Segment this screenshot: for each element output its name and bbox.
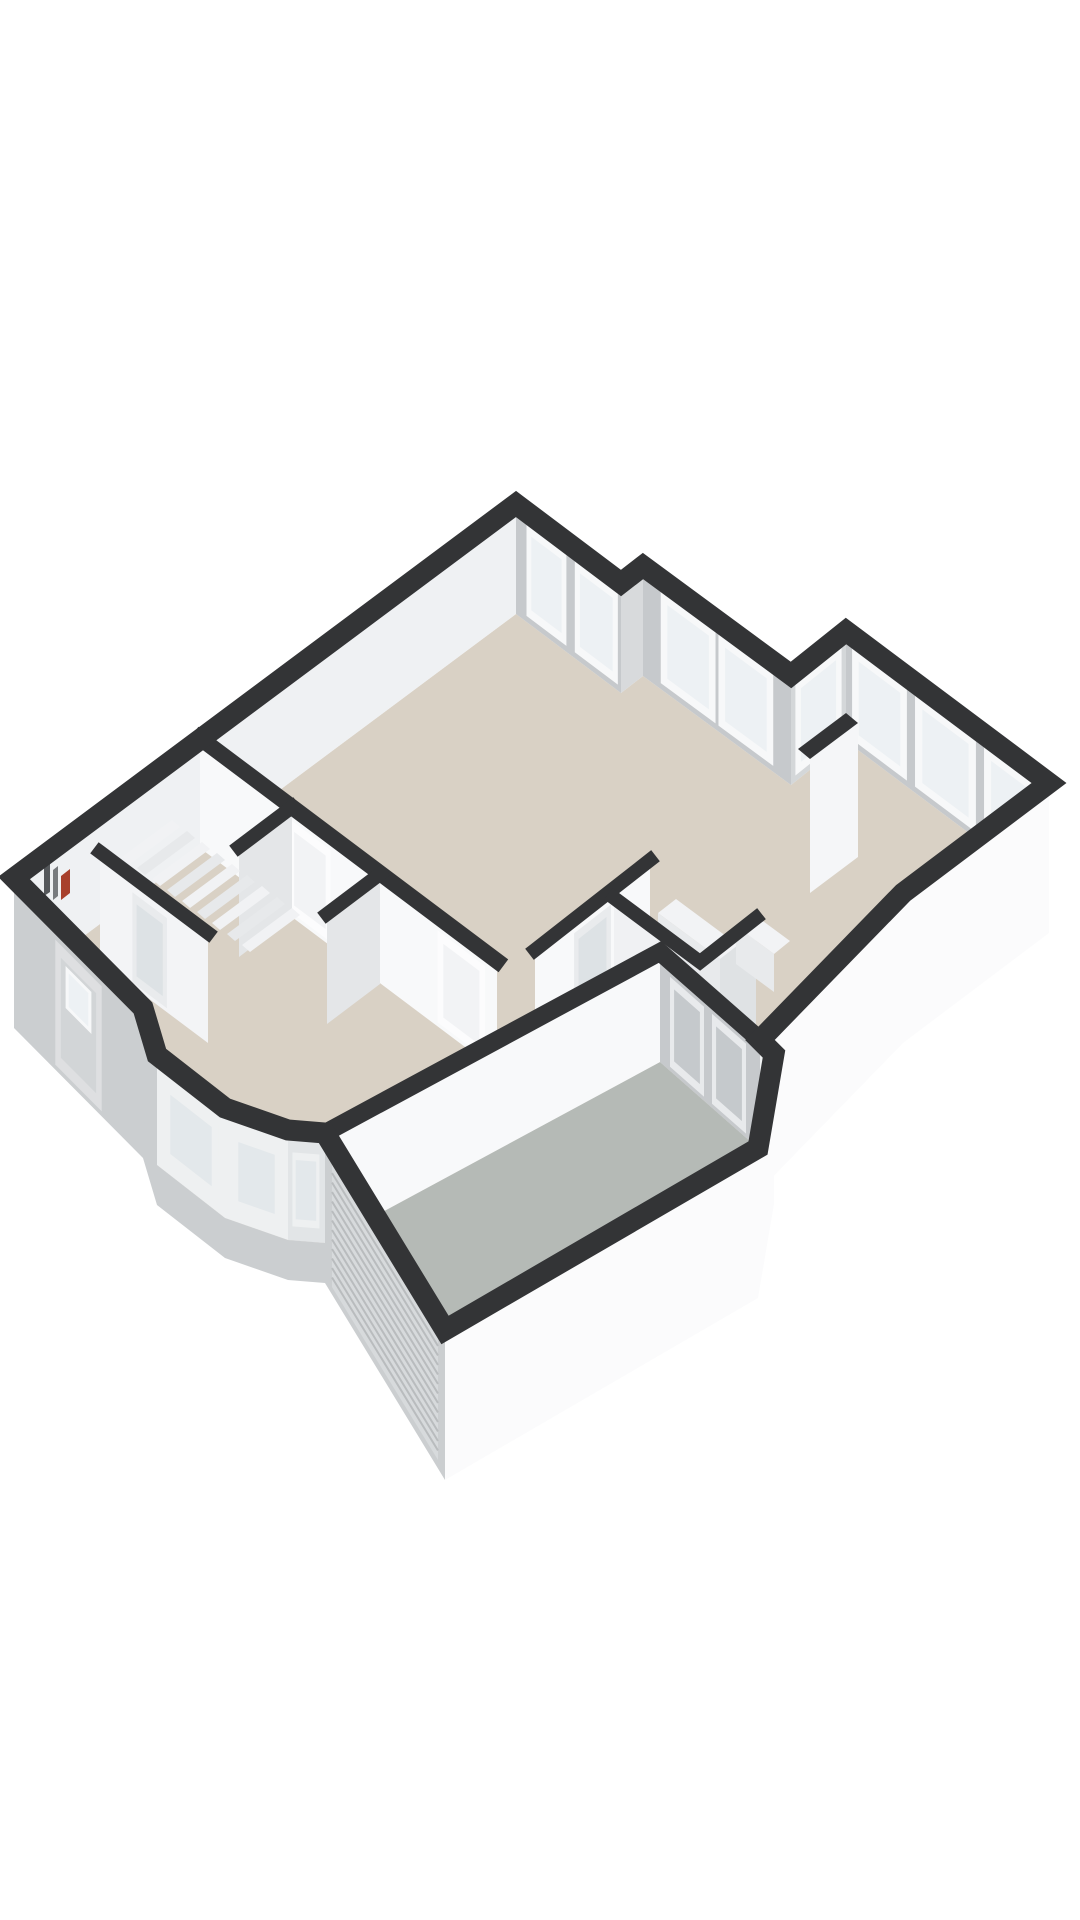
bay-window-right-glass [296,1160,317,1221]
meter-closet-slat-mid [53,866,58,900]
floorplan-viewport [0,0,1080,1920]
floorplan-3d-render [0,0,1080,1920]
